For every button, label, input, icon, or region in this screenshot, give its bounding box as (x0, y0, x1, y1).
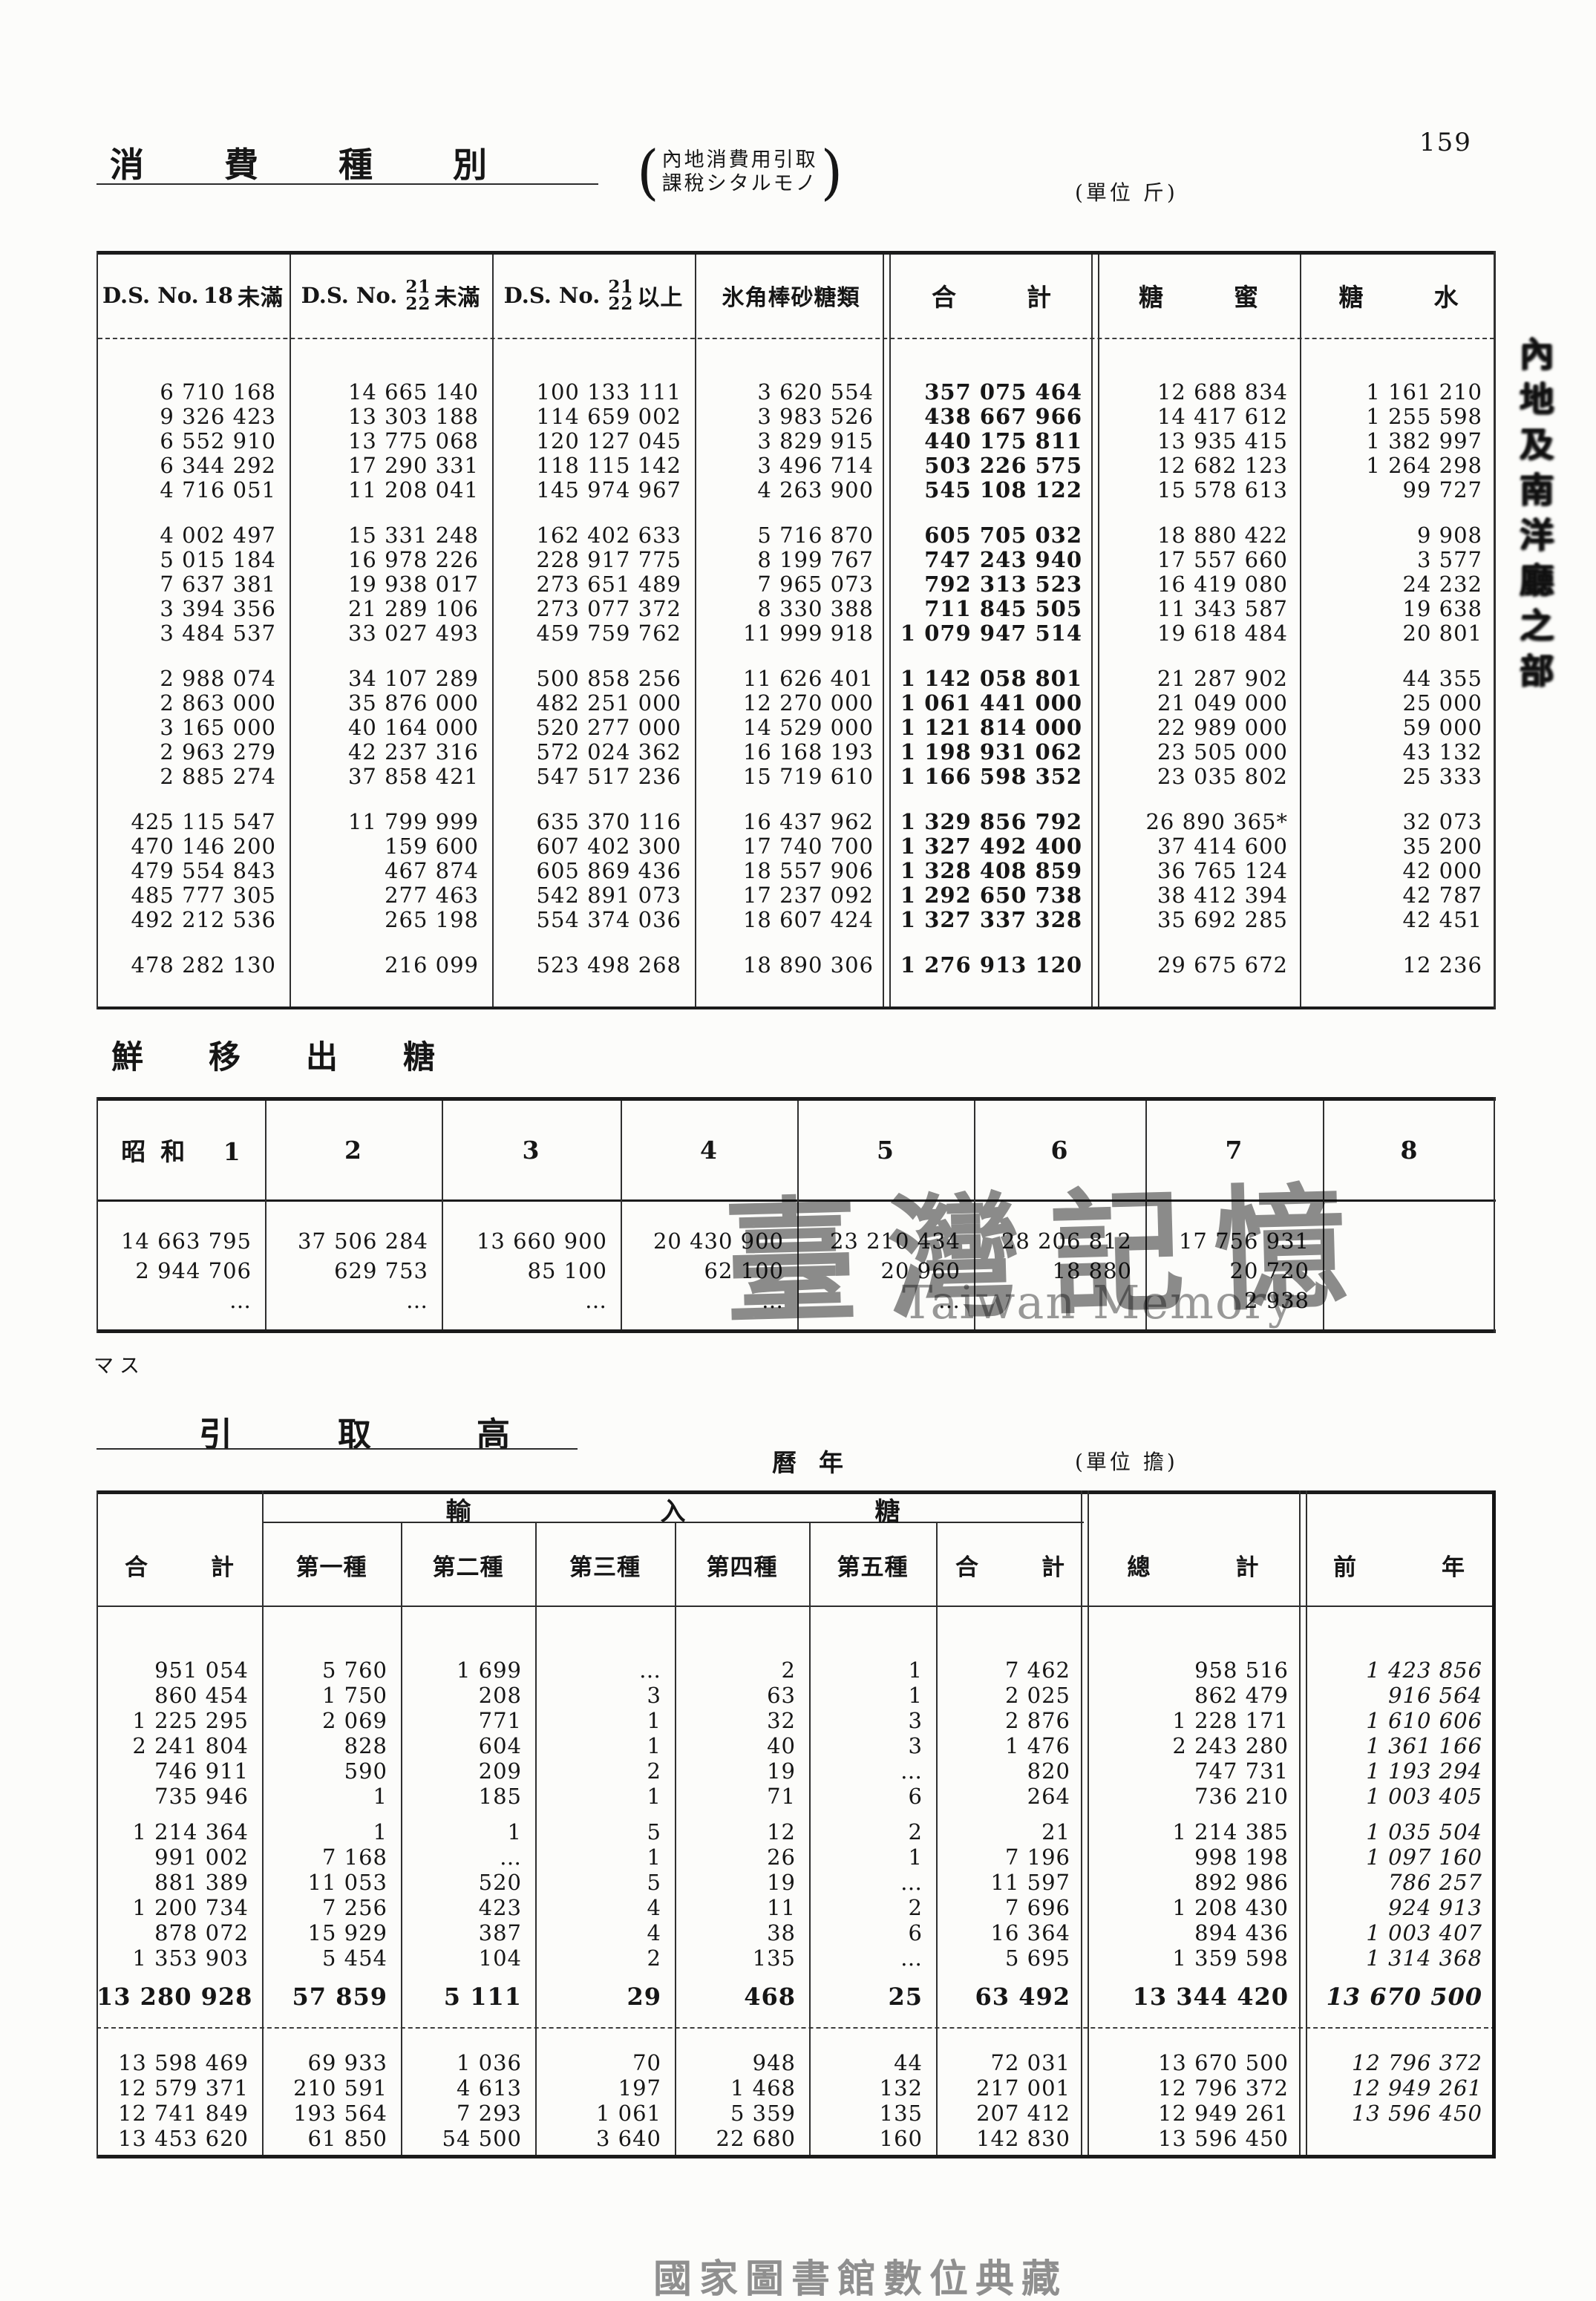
table-cell: 572 024 362 (492, 740, 695, 765)
table-cell: 1 (535, 1708, 675, 1733)
table-cell: 209 (401, 1758, 535, 1784)
table-cell: 523 498 268 (492, 953, 695, 978)
table-cell: 1 276 913 120 (887, 953, 1096, 978)
table-cell: 12 949 261 (1302, 2075, 1496, 2101)
table-cell: 210 591 (262, 2075, 401, 2101)
table-row: 3 165 00040 164 000520 277 00014 529 000… (97, 716, 1496, 740)
column-header: 合計 (97, 1523, 262, 1607)
table-cell: 160 (809, 2126, 936, 2151)
table-row: 6 344 29217 290 331118 115 1423 496 7145… (97, 454, 1496, 478)
table-cell: 2 863 000 (97, 691, 290, 716)
table-cell: 7 168 (262, 1845, 401, 1870)
table-cell: 19 (675, 1758, 809, 1784)
intake-table-final-rows: 13 598 46969 9331 036709484472 03113 670… (97, 2050, 1496, 2151)
table-cell: 207 412 (936, 2101, 1084, 2126)
table-cell: 7 256 (262, 1895, 401, 1920)
table-cell: 520 (401, 1870, 535, 1895)
table-cell: 12 949 261 (1084, 2101, 1302, 2126)
table-cell: 17 290 331 (290, 454, 492, 478)
table-cell: 2 944 706 (97, 1256, 265, 1286)
table-row: 878 07215 929387438616 364894 4361 003 4… (97, 1920, 1496, 1945)
table-cell: 916 564 (1302, 1683, 1496, 1708)
table-cell: 42 451 (1301, 908, 1496, 932)
table-cell: 99 727 (1301, 478, 1496, 503)
table-cell: 7 696 (936, 1895, 1084, 1920)
table-cell: 9 326 423 (97, 405, 290, 429)
table-cell: 13 280 928 (97, 1981, 262, 2012)
table-cell: 357 075 464 (887, 380, 1096, 405)
table-cell: … (265, 1286, 442, 1315)
table-row: 492 212 536265 198554 374 03618 607 4241… (97, 908, 1496, 932)
table-cell: 19 638 (1301, 597, 1496, 621)
table-cell: 878 072 (97, 1920, 262, 1945)
table-cell: 958 516 (1084, 1657, 1302, 1683)
library-footer: 國家圖書館數位典藏 (653, 2248, 1067, 2301)
table-cell: 951 054 (97, 1657, 262, 1683)
table-cell: 72 031 (936, 2050, 1084, 2075)
table-cell: 3 (535, 1683, 675, 1708)
table-cell: 23 035 802 (1096, 765, 1301, 789)
imported-sugar-span-header: 輸入糖 (262, 1491, 1084, 1528)
table-cell: 1 (809, 1845, 936, 1870)
table-row: 4 716 05111 208 041145 974 9674 263 9005… (97, 478, 1496, 503)
table-cell: 2 (535, 1945, 675, 1971)
table-cell: 11 343 587 (1096, 597, 1301, 621)
table-cell: 13 670 500 (1302, 1981, 1496, 2012)
table-cell: 12 796 372 (1302, 2050, 1496, 2075)
table-cell: 57 859 (262, 1981, 401, 2012)
table-cell: 459 759 762 (492, 621, 695, 646)
table-cell: 44 355 (1301, 667, 1496, 691)
table-cell: 3 484 537 (97, 621, 290, 646)
table-cell: 1 (535, 1845, 675, 1870)
table-cell: 18 607 424 (695, 908, 887, 932)
table-cell: 85 100 (442, 1256, 621, 1286)
table-cell: 1 264 298 (1301, 454, 1496, 478)
table-cell: 1 061 441 000 (887, 691, 1096, 716)
table-cell: 6 (809, 1920, 936, 1945)
table-cell: 2 (809, 1895, 936, 1920)
table-cell: 12 688 834 (1096, 380, 1301, 405)
table-cell: 35 200 (1301, 834, 1496, 859)
table-cell: 607 402 300 (492, 834, 695, 859)
table-cell: 3 496 714 (695, 454, 887, 478)
table-cell: 948 (675, 2050, 809, 2075)
table-cell: 500 858 256 (492, 667, 695, 691)
table-cell: 44 (809, 2050, 936, 2075)
table-row: 2 241 80482860414031 4762 243 2801 361 1… (97, 1733, 1496, 1758)
column-header: D.S. No. 21 22 未滿 (290, 252, 492, 338)
table-cell: 14 417 612 (1096, 405, 1301, 429)
table-row: 479 554 843467 874605 869 43618 557 9061… (97, 859, 1496, 883)
table-cell: 1 (262, 1784, 401, 1809)
table-cell: 197 (535, 2075, 675, 2101)
table-row: 9 326 42313 303 188114 659 0023 983 5264… (97, 405, 1496, 429)
calendar-year-label: 曆年 (772, 1443, 866, 1479)
table-cell: 118 115 142 (492, 454, 695, 478)
table-cell: 1 353 903 (97, 1945, 262, 1971)
annotation-line-1: 內地消費用引取 (662, 148, 818, 172)
table-cell: 43 132 (1301, 740, 1496, 765)
table-cell: 19 (675, 1870, 809, 1895)
table-cell: 19 938 017 (290, 572, 492, 597)
page-number: 159 (1419, 128, 1472, 157)
table-cell: 21 289 106 (290, 597, 492, 621)
table-cell: 22 989 000 (1096, 716, 1301, 740)
page-title: 消費種別 (110, 138, 567, 187)
table-cell: 860 454 (97, 1683, 262, 1708)
table-cell: 554 374 036 (492, 908, 695, 932)
table-cell: 470 146 200 (97, 834, 290, 859)
table-row: 860 4541 75020836312 025862 479916 564 (97, 1683, 1496, 1708)
table-cell: 13 670 500 (1084, 2050, 1302, 2075)
table-row: 478 282 130216 099523 498 26818 890 3061… (97, 953, 1496, 978)
table-row: 485 777 305277 463542 891 07317 237 0921… (97, 883, 1496, 908)
table-cell: 1 (535, 1784, 675, 1809)
title-annotation: ( 內地消費用引取 課稅シタルモノ ) (637, 148, 843, 196)
table-cell: 1 750 (262, 1683, 401, 1708)
table-cell: 17 740 700 (695, 834, 887, 859)
table-row: 5 015 18416 978 226228 917 7758 199 7677… (97, 548, 1496, 572)
table-cell: 35 692 285 (1096, 908, 1301, 932)
table-cell: 11 626 401 (695, 667, 887, 691)
table-cell: 3 620 554 (695, 380, 887, 405)
table-cell: 17 237 092 (695, 883, 887, 908)
table-row: 12 579 371210 5914 6131971 468132217 001… (97, 2075, 1496, 2101)
table-cell: 12 579 371 (97, 2075, 262, 2101)
column-header: D.S. No. 21 22 以上 (492, 252, 695, 338)
table-cell: 100 133 111 (492, 380, 695, 405)
table-row: 735 94611851716264736 2101 003 405 (97, 1784, 1496, 1809)
table-cell: 5 716 870 (695, 523, 887, 548)
table-cell: 69 933 (262, 2050, 401, 2075)
table-cell: 185 (401, 1784, 535, 1809)
table-cell: 34 107 289 (290, 667, 492, 691)
table-cell: 42 000 (1301, 859, 1496, 883)
table-cell: 1 003 405 (1302, 1784, 1496, 1809)
table-cell: 11 999 918 (695, 621, 887, 646)
table-cell: 1 468 (675, 2075, 809, 2101)
rule (97, 2155, 1496, 2158)
side-margin-caption: 內地及南洋廳之部 (1510, 336, 1559, 751)
table-cell: 1 329 856 792 (887, 810, 1096, 834)
table-cell: 38 412 394 (1096, 883, 1301, 908)
rule (98, 338, 1494, 339)
table-cell: 38 (675, 1920, 809, 1945)
table-cell: 3 577 (1301, 548, 1496, 572)
table-cell: 18 890 306 (695, 953, 887, 978)
table-cell: 604 (401, 1733, 535, 1758)
rule (97, 2027, 1496, 2029)
table-cell: 2 (809, 1819, 936, 1845)
table-cell: 29 (535, 1981, 675, 2012)
table-row: 746 911590209219…820747 7311 193 294 (97, 1758, 1496, 1784)
row-group: 13 280 92857 8595 111294682563 49213 344… (97, 1981, 1496, 2012)
table-cell: 3 (809, 1708, 936, 1733)
table-cell: … (535, 1657, 675, 1683)
table-cell: 605 705 032 (887, 523, 1096, 548)
table-cell: 5 (535, 1870, 675, 1895)
table-cell: 1 061 (535, 2101, 675, 2126)
table-cell: 15 578 613 (1096, 478, 1301, 503)
table-cell: 21 (936, 1819, 1084, 1845)
table-cell: 5 111 (401, 1981, 535, 2012)
table-cell: … (97, 1286, 265, 1315)
table-cell: 273 077 372 (492, 597, 695, 621)
table-cell: 135 (675, 1945, 809, 1971)
table-row: 991 0027 168…12617 196998 1981 097 160 (97, 1845, 1496, 1870)
table-cell: 145 974 967 (492, 478, 695, 503)
column-header: 糖水 (1301, 252, 1496, 338)
table-cell: 25 333 (1301, 765, 1496, 789)
table-cell: 991 002 (97, 1845, 262, 1870)
table-cell: 273 651 489 (492, 572, 695, 597)
table-cell: 23 505 000 (1096, 740, 1301, 765)
table-cell: 1 (401, 1819, 535, 1845)
table-cell: 61 850 (262, 2126, 401, 2151)
table-cell: 605 869 436 (492, 859, 695, 883)
table-cell: … (442, 1286, 621, 1315)
table-cell: 11 208 041 (290, 478, 492, 503)
table-cell: 32 073 (1301, 810, 1496, 834)
table-cell: 2 (675, 1657, 809, 1683)
table-cell: 1 382 997 (1301, 429, 1496, 454)
column-header: 第五種 (809, 1523, 936, 1607)
table-cell: 5 (535, 1819, 675, 1845)
table-cell: 24 232 (1301, 572, 1496, 597)
table-cell: 193 564 (262, 2101, 401, 2126)
table-row: 3 484 53733 027 493459 759 76211 999 918… (97, 621, 1496, 646)
intake-title-underline (97, 1448, 578, 1450)
table-cell: 120 127 045 (492, 429, 695, 454)
table-cell: 735 946 (97, 1784, 262, 1809)
open-paren: ( (637, 147, 659, 197)
table-row: 2 988 07434 107 289500 858 25611 626 401… (97, 667, 1496, 691)
table-cell (1302, 2126, 1496, 2151)
column-header: 前年 (1302, 1523, 1496, 1607)
table-cell: 15 929 (262, 1920, 401, 1945)
table-cell: 1 003 407 (1302, 1920, 1496, 1945)
table-cell: 711 845 505 (887, 597, 1096, 621)
close-paren: ) (821, 147, 843, 197)
table-cell: 542 891 073 (492, 883, 695, 908)
table-cell: 54 500 (401, 2126, 535, 2151)
table-cell: 425 115 547 (97, 810, 290, 834)
column-header: 氷角棒砂糖類 (695, 252, 887, 338)
table-cell: 5 015 184 (97, 548, 290, 572)
intake-table-body: 951 0545 7601 699…217 462958 5161 423 85… (97, 1657, 1496, 1971)
table-cell: 468 (675, 1981, 809, 2012)
table-cell: 482 251 000 (492, 691, 695, 716)
table-row: 1 225 2952 06977113232 8761 228 1711 610… (97, 1708, 1496, 1733)
table-cell: 135 (809, 2101, 936, 2126)
table-cell: 13 775 068 (290, 429, 492, 454)
table-cell: 1 327 492 400 (887, 834, 1096, 859)
table-cell: 6 (809, 1784, 936, 1809)
table-cell: 1 097 160 (1302, 1845, 1496, 1870)
table-row: 3 394 35621 289 106273 077 3728 330 3887… (97, 597, 1496, 621)
table-cell: 18 557 906 (695, 859, 887, 883)
table-cell: 747 243 940 (887, 548, 1096, 572)
table-cell: 37 414 600 (1096, 834, 1301, 859)
table-cell: 545 108 122 (887, 478, 1096, 503)
table-cell: 14 529 000 (695, 716, 887, 740)
table-cell: 1 328 408 859 (887, 859, 1096, 883)
table-cell: 19 618 484 (1096, 621, 1301, 646)
table-row: 951 0545 7601 699…217 462958 5161 423 85… (97, 1657, 1496, 1683)
table-cell: 7 293 (401, 2101, 535, 2126)
table-cell: 1 255 598 (1301, 405, 1496, 429)
unit-label-piculs: (單位 擔) (1075, 1446, 1178, 1476)
table-cell: 162 402 633 (492, 523, 695, 548)
table-cell: 16 168 193 (695, 740, 887, 765)
table-cell: 26 890 365* (1096, 810, 1301, 834)
column-header: 2 (265, 1099, 442, 1201)
table-cell: 142 830 (936, 2126, 1084, 2151)
table-cell: 4 716 051 (97, 478, 290, 503)
table-row: 2 863 00035 876 000482 251 00012 270 000… (97, 691, 1496, 716)
table-cell: 1 292 650 738 (887, 883, 1096, 908)
table-cell: 12 270 000 (695, 691, 887, 716)
table-cell: 104 (401, 1945, 535, 1971)
table-cell: 13 660 900 (442, 1226, 621, 1256)
table-cell: 746 911 (97, 1758, 262, 1784)
table-cell: 11 799 999 (290, 810, 492, 834)
table-cell: 12 (675, 1819, 809, 1845)
table-cell: 792 313 523 (887, 572, 1096, 597)
table-cell: 440 175 811 (887, 429, 1096, 454)
table-cell: 6 552 910 (97, 429, 290, 454)
table-row: 1 214 364115122211 214 3851 035 504 (97, 1819, 1496, 1845)
table-cell: … (809, 1870, 936, 1895)
table-cell: 13 303 188 (290, 405, 492, 429)
table-cell: 1 359 598 (1084, 1945, 1302, 1971)
table-cell: 14 663 795 (97, 1226, 265, 1256)
table-cell: 15 331 248 (290, 523, 492, 548)
intake-table-header: 合計 第一種 第二種 第三種 第四種 第五種 合計 總計 前年 (97, 1523, 1496, 1607)
table-cell: 12 682 123 (1096, 454, 1301, 478)
row-group: 1 214 364115122211 214 3851 035 504991 0… (97, 1819, 1496, 1971)
table-cell: 2 963 279 (97, 740, 290, 765)
table-cell: 63 (675, 1683, 809, 1708)
table-row: 881 38911 053520519…11 597892 986786 257 (97, 1870, 1496, 1895)
table-cell: 36 765 124 (1096, 859, 1301, 883)
table-cell: 71 (675, 1784, 809, 1809)
table-cell: 1 166 598 352 (887, 765, 1096, 789)
table-cell: 35 876 000 (290, 691, 492, 716)
table-cell: 4 (535, 1920, 675, 1945)
table-cell: 277 463 (290, 883, 492, 908)
table-cell: 1 198 931 062 (887, 740, 1096, 765)
table-cell: 894 436 (1084, 1920, 1302, 1945)
table-cell: 1 228 171 (1084, 1708, 1302, 1733)
table-cell: 14 665 140 (290, 380, 492, 405)
table-cell: 5 454 (262, 1945, 401, 1971)
table-cell: … (809, 1758, 936, 1784)
table-cell: 6 710 168 (97, 380, 290, 405)
row-group: 4 002 49715 331 248162 402 6335 716 8706… (97, 523, 1496, 646)
table-cell: 1 036 (401, 2050, 535, 2075)
taiwan-memory-watermark-latin: Taiwan Memory (902, 1275, 1295, 1329)
table-cell: 3 (809, 1733, 936, 1758)
table-cell: 892 986 (1084, 1870, 1302, 1895)
table-cell: 16 437 962 (695, 810, 887, 834)
table-cell: 492 212 536 (97, 908, 290, 932)
table-cell: 40 164 000 (290, 716, 492, 740)
table-cell: 8 330 388 (695, 597, 887, 621)
table-cell: 503 226 575 (887, 454, 1096, 478)
table-cell: 40 (675, 1733, 809, 1758)
table-cell: 59 000 (1301, 716, 1496, 740)
table-cell: 3 394 356 (97, 597, 290, 621)
column-header: 合計 (887, 252, 1096, 338)
table-cell: 1 214 385 (1084, 1819, 1302, 1845)
table-cell: 208 (401, 1683, 535, 1708)
table-row: 6 710 16814 665 140100 133 1113 620 5543… (97, 380, 1496, 405)
table-cell: 635 370 116 (492, 810, 695, 834)
table-cell: 629 753 (265, 1256, 442, 1286)
table-cell: 13 344 420 (1084, 1981, 1302, 2012)
table-cell: 25 (809, 1981, 936, 2012)
column-header: 3 (442, 1099, 621, 1201)
table-cell: 478 282 130 (97, 953, 290, 978)
table-cell: 37 506 284 (265, 1226, 442, 1256)
table-cell: 736 210 (1084, 1784, 1302, 1809)
table-cell: 13 935 415 (1096, 429, 1301, 454)
table-cell: 16 364 (936, 1920, 1084, 1945)
table-cell: 21 049 000 (1096, 691, 1301, 716)
table-row: 1 353 9035 4541042135…5 6951 359 5981 31… (97, 1945, 1496, 1971)
margin-note: マス (94, 1349, 145, 1378)
table-cell: 2 241 804 (97, 1733, 262, 1758)
table-cell: 8 199 767 (695, 548, 887, 572)
table-cell: 520 277 000 (492, 716, 695, 740)
table-cell: 547 517 236 (492, 765, 695, 789)
table-cell: 1 (809, 1657, 936, 1683)
table-cell: 265 198 (290, 908, 492, 932)
table-cell: 20 801 (1301, 621, 1496, 646)
table-cell: 2 885 274 (97, 765, 290, 789)
table-cell: 590 (262, 1758, 401, 1784)
table-cell: 1 314 368 (1302, 1945, 1496, 1971)
table-cell: 438 667 966 (887, 405, 1096, 429)
export-section-title: 鮮移出糖 (111, 1032, 500, 1078)
table-cell: 70 (535, 2050, 675, 2075)
table-cell: 11 053 (262, 1870, 401, 1895)
table-cell: 159 600 (290, 834, 492, 859)
table-cell: 1 (262, 1819, 401, 1845)
table-cell: 13 453 620 (97, 2126, 262, 2151)
table-cell: 12 741 849 (97, 2101, 262, 2126)
table-row: 13 453 62061 85054 5003 64022 680160142 … (97, 2126, 1496, 2151)
table-cell: 1 361 166 (1302, 1733, 1496, 1758)
fraction: 21 22 (405, 278, 431, 312)
table-cell: 12 796 372 (1084, 2075, 1302, 2101)
table-cell: 2 876 (936, 1708, 1084, 1733)
table-cell: 217 001 (936, 2075, 1084, 2101)
table-cell: 924 913 (1302, 1895, 1496, 1920)
table-cell: 881 389 (97, 1870, 262, 1895)
table-cell: 1 121 814 000 (887, 716, 1096, 740)
row-group: 951 0545 7601 699…217 462958 5161 423 85… (97, 1657, 1496, 1809)
table-cell: 7 965 073 (695, 572, 887, 597)
table-cell: 17 557 660 (1096, 548, 1301, 572)
column-header: 第四種 (675, 1523, 809, 1607)
table-cell: 1 423 856 (1302, 1657, 1496, 1683)
table-row: 13 280 92857 8595 111294682563 49213 344… (97, 1981, 1496, 2012)
table-cell: 1 (809, 1683, 936, 1708)
column-header: 昭和 1 (97, 1099, 265, 1201)
